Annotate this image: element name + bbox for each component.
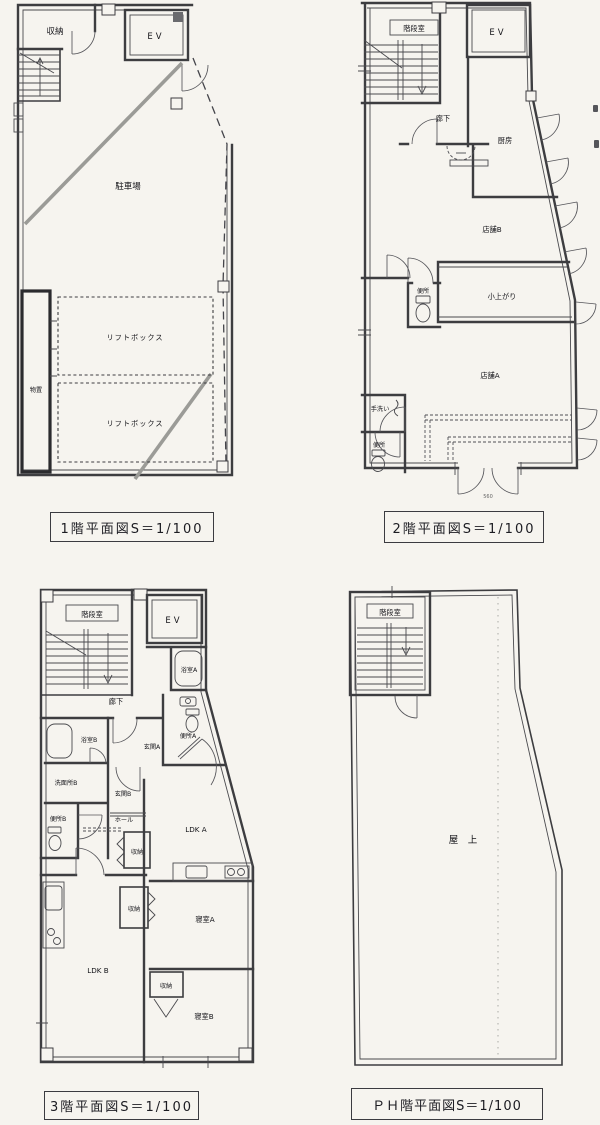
room-label-ldk-a: LDK A [185,825,207,834]
storage-door-arc [72,31,95,54]
room-label-toilet-lower: 便所 [373,441,385,449]
caption-floor2: 2階平面図S＝1/100 [384,511,544,543]
room-label-closet-2: 収納 [128,905,140,913]
scan-smudge [594,140,599,148]
ph-floor-plan: 階段室 屋 上 [340,583,590,1078]
room-label-handwash: 手洗い [371,405,390,413]
shed-room [22,291,57,472]
genkan-b-door-arc [116,767,140,791]
floor2-stairs [364,20,438,100]
kitchen-sink-icon [447,146,488,166]
room-label-washroom-b: 洗面所B [55,779,78,787]
floor1-stairs [18,53,60,96]
site-boundary-dashed [171,58,229,472]
room-label-liftbox-b: リフトボックス [106,419,163,428]
room-label-corridor: 廊下 [109,697,123,706]
room-label-bath-b: 浴室B [81,736,98,744]
room-label-elevator: EV [165,616,182,626]
room-label-storage: 収納 [46,26,63,37]
room-label-koagari: 小上がり [488,292,517,301]
room-label-ldk-b: LDK B [87,966,109,975]
handwash-area [380,400,405,432]
room-label-liftbox-a: リフトボックス [106,333,163,342]
counter-dashed-lines [425,415,572,461]
room-label-shop-b: 店舗B [482,225,501,234]
entrance-door-arcs [458,468,518,494]
room-label-elevator: EV [147,32,164,42]
toilet-upper-icon [416,296,430,322]
floor3-plan: 階段室 EV 浴室A 廊下 便所A 玄関A [28,585,280,1077]
room-label-shop-a: 店舗A [480,371,499,380]
floorplan-sheet: EV 収納 駐車場 リフトボックス リフトボックス 物置 [0,0,600,1125]
ph-parapet-walls [350,590,562,1065]
room-label-toilet-b: 便所B [50,815,67,823]
ph-stair-box [350,586,430,718]
room-label-genkan-a: 玄関A [144,743,161,751]
scan-smudge [593,105,598,112]
room-label-shed: 物置 [30,386,42,394]
corridor-door-arc [387,119,437,283]
hall-details [76,828,123,875]
room-label-bedroom-a: 寝室A [195,915,214,924]
room-label-rooftop: 屋 上 [449,835,478,846]
room-label-closet-1: 収納 [131,848,143,856]
toilet-a-icon [180,697,199,732]
room-label-hall: ホール [115,817,134,824]
floor3-interior-walls [41,647,253,1062]
caption-floor1: 1階平面図S＝1/100 [50,512,214,542]
room-label-elevator: EV [489,28,506,38]
room-label-bath-a: 浴室A [181,666,198,674]
ldk-a-kitchen-counter [173,863,252,881]
caption-floor-ph: ＰＨ階平面図S＝1/100 [351,1088,543,1120]
caption-floor3: 3階平面図S＝1/100 [44,1091,199,1120]
room-label-genkan-b: 玄関B [115,790,132,798]
room-label-kitchen: 厨房 [498,136,512,145]
room-label-toilet-upper: 便所 [417,287,429,295]
room-label-corridor: 廊下 [436,114,450,123]
room-label-toilet-a: 便所A [180,732,197,740]
room-label-parking: 駐車場 [115,181,141,192]
room-label-stairwell: 階段室 [379,608,401,617]
room-label-stairwell: 階段室 [81,610,103,619]
closet-3 [150,972,183,1017]
room-label-bedroom-b: 寝室B [194,1012,213,1021]
floor2-plan: 階段室 EV 廊下 厨房 店舗B 便所 小 [350,0,600,505]
room-label-closet-3: 収納 [160,982,172,990]
room-label-stairwell: 階段室 [403,24,425,33]
genkan-a-door-arcs [113,718,216,785]
entrance-dimension: 560 [483,494,493,500]
toilet-lower-icon [372,432,401,472]
parking-ramp-lines [25,63,211,479]
floor1-plan: EV 収納 駐車場 リフトボックス リフトボックス 物置 [10,3,260,503]
